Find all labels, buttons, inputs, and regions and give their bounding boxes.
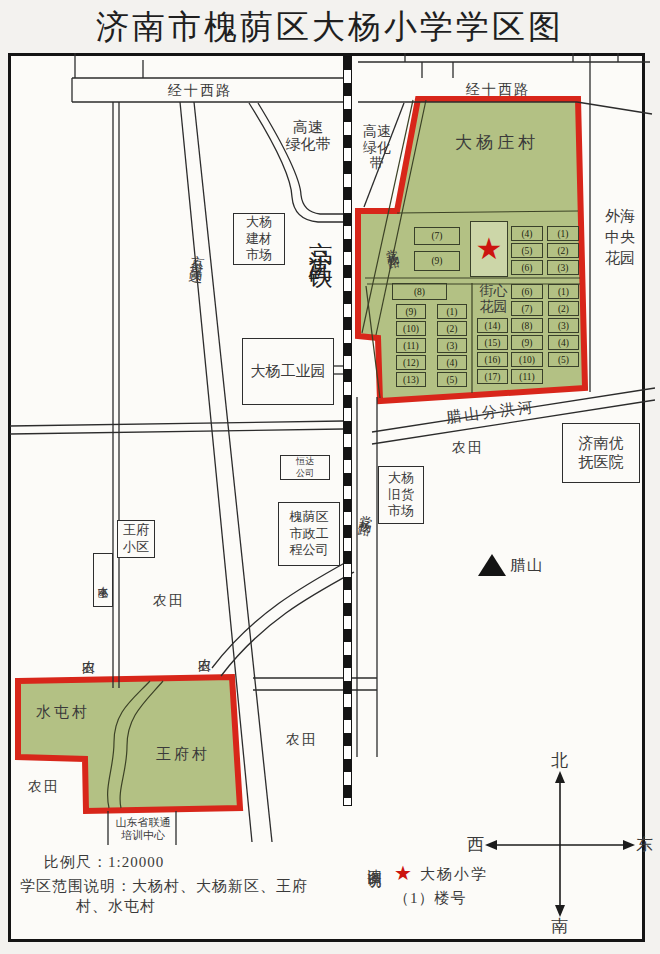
hospital-line1: 济南优 <box>579 434 624 454</box>
hengda-line1: 恒达 <box>296 456 314 468</box>
shuitun-estate-box: 水屯小区 <box>93 553 113 607</box>
zone-shuitun-label: 水屯村 <box>36 704 90 721</box>
building-box: (2) <box>547 243 579 258</box>
waihai-line2: 中央 <box>605 229 635 245</box>
street-garden-line1: 街心 <box>480 283 508 298</box>
zone-wangfu-label: 王府村 <box>156 746 210 763</box>
zone-note-line2: 村、水屯村 <box>76 898 156 915</box>
building-box: (2) <box>437 321 467 336</box>
building-box: (2) <box>548 301 579 316</box>
reading-note-label: 读图说明 <box>366 858 382 866</box>
building-box: (1) <box>547 226 579 241</box>
mountain-icon <box>478 554 506 576</box>
building-box: (1) <box>548 284 579 299</box>
greenbelt-left-label: 高速 绿化带 <box>284 119 332 154</box>
unicom-line2: 培训中心 <box>121 829 165 841</box>
building-box: (12) <box>396 355 426 370</box>
greenbelt-right-line1: 高速 <box>363 124 391 139</box>
school-location-box: ★ <box>470 221 508 277</box>
building-box: (3) <box>548 318 579 333</box>
building-box: (16) <box>477 352 508 367</box>
junk-market-line2: 旧货 <box>388 487 414 504</box>
municipal-line3: 程公司 <box>290 542 329 559</box>
scale-label: 比例尺：1:20000 <box>44 854 164 871</box>
industrial-park-label: 大杨工业园 <box>251 362 326 382</box>
building-box: (5) <box>548 352 579 367</box>
street-garden-label: 街心 花园 <box>477 283 510 315</box>
building-box: (10) <box>396 321 426 336</box>
zone-note-line1: 学区范围说明：大杨村、大杨新区、王府 <box>20 878 308 895</box>
wangfu-estate-line1: 王府 <box>123 522 149 539</box>
street-garden-line2: 花园 <box>480 299 508 314</box>
building-box: (7) <box>414 227 460 245</box>
building-box: (4) <box>437 355 467 370</box>
farmland-label: 农田 <box>28 779 60 795</box>
municipal-company-box: 槐荫区 市政工 程公司 <box>278 502 340 566</box>
building-box: (13) <box>396 372 426 387</box>
compass-east-label: 东 <box>636 835 653 855</box>
compass-south-label: 南 <box>551 917 568 937</box>
building-market-line1: 大杨 <box>246 214 272 231</box>
wangfu-estate-box: 王府 小区 <box>117 520 155 558</box>
farmland-label: 农田 <box>80 650 95 656</box>
municipal-line2: 市政工 <box>290 526 329 543</box>
building-box: (7) <box>511 301 543 316</box>
railway-label: 京沪高铁 <box>306 222 334 254</box>
compass-west-label: 西 <box>467 835 484 855</box>
junk-market-box: 大杨 旧货 市场 <box>378 466 424 524</box>
road-label-jingshi-west-right: 经十西路 <box>466 82 530 98</box>
building-box: (6) <box>511 260 543 275</box>
hospital-box: 济南优 抚医院 <box>562 423 640 483</box>
farmland-label: 农田 <box>286 732 318 748</box>
hengda-line2: 公司 <box>296 468 314 480</box>
building-box: (11) <box>511 369 543 384</box>
waihai-line1: 外海 <box>605 208 635 224</box>
greenbelt-left-line2: 绿化带 <box>286 136 331 152</box>
road-label-jingshi-west-left: 经十西路 <box>168 83 232 99</box>
municipal-line1: 槐荫区 <box>290 509 329 526</box>
compass-north-label: 北 <box>551 751 568 771</box>
hospital-line2: 抚医院 <box>579 453 624 473</box>
school-star-icon: ★ <box>476 234 503 264</box>
building-box: (6) <box>511 284 543 299</box>
building-box: (10) <box>511 352 543 367</box>
building-box: (1) <box>437 304 467 319</box>
railway-track <box>343 56 352 806</box>
greenbelt-right-line3: 带 <box>370 156 384 171</box>
dangyang-road-label-lower: 党杨路 <box>358 504 375 518</box>
junk-market-line3: 市场 <box>388 503 414 520</box>
wangfu-estate-line2: 小区 <box>123 539 149 556</box>
waihai-line3: 花园 <box>605 250 635 266</box>
industrial-park-box: 大杨工业园 <box>242 338 334 405</box>
greenbelt-right-label: 高速 绿化 带 <box>360 124 394 172</box>
zone-dayangzhuang-label: 大杨庄村 <box>455 133 539 153</box>
building-box: (17) <box>477 369 508 384</box>
building-box: (4) <box>548 335 579 350</box>
junk-market-line1: 大杨 <box>388 470 414 487</box>
legend-building-no-label: （1）楼号 <box>394 890 467 907</box>
building-box: (4) <box>511 226 543 241</box>
compass-cross <box>494 780 626 908</box>
greenbelt-right-line2: 绿化 <box>363 140 391 155</box>
unicom-center-label: 山东省联通 培训中心 <box>110 816 176 841</box>
building-market-line2: 建材 <box>246 231 272 248</box>
farmland-label: 农田 <box>452 440 484 456</box>
legend-star-icon: ★ <box>394 862 412 885</box>
greenbelt-left-line1: 高速 <box>293 119 323 135</box>
building-box: (3) <box>547 260 579 275</box>
jingtai-expwy-label: 京台高速 <box>189 242 207 264</box>
lashan-label: 腊山 <box>510 557 544 574</box>
building-box: (5) <box>437 372 467 387</box>
waihai-garden-label: 外海 中央 花园 <box>598 206 642 269</box>
hengda-company-box: 恒达 公司 <box>280 455 330 480</box>
shuitun-estate-label: 水屯小区 <box>97 578 110 582</box>
farmland-label: 农田 <box>196 648 211 654</box>
building-box: (8) <box>392 283 447 300</box>
building-box: (9) <box>511 335 543 350</box>
farmland-label: 农田 <box>153 593 185 609</box>
building-box: (14) <box>477 318 508 333</box>
building-box: (15) <box>477 335 508 350</box>
building-box: (9) <box>414 251 460 271</box>
building-box: (5) <box>511 243 543 258</box>
building-box: (9) <box>396 304 426 319</box>
building-market-line3: 市场 <box>246 247 272 264</box>
building-box: (11) <box>396 338 426 353</box>
building-market-box: 大杨 建材 市场 <box>233 213 285 265</box>
building-box: (3) <box>437 338 467 353</box>
legend-school-label: 大杨小学 <box>420 866 488 883</box>
unicom-line1: 山东省联通 <box>116 816 171 828</box>
building-box: (8) <box>511 318 543 333</box>
